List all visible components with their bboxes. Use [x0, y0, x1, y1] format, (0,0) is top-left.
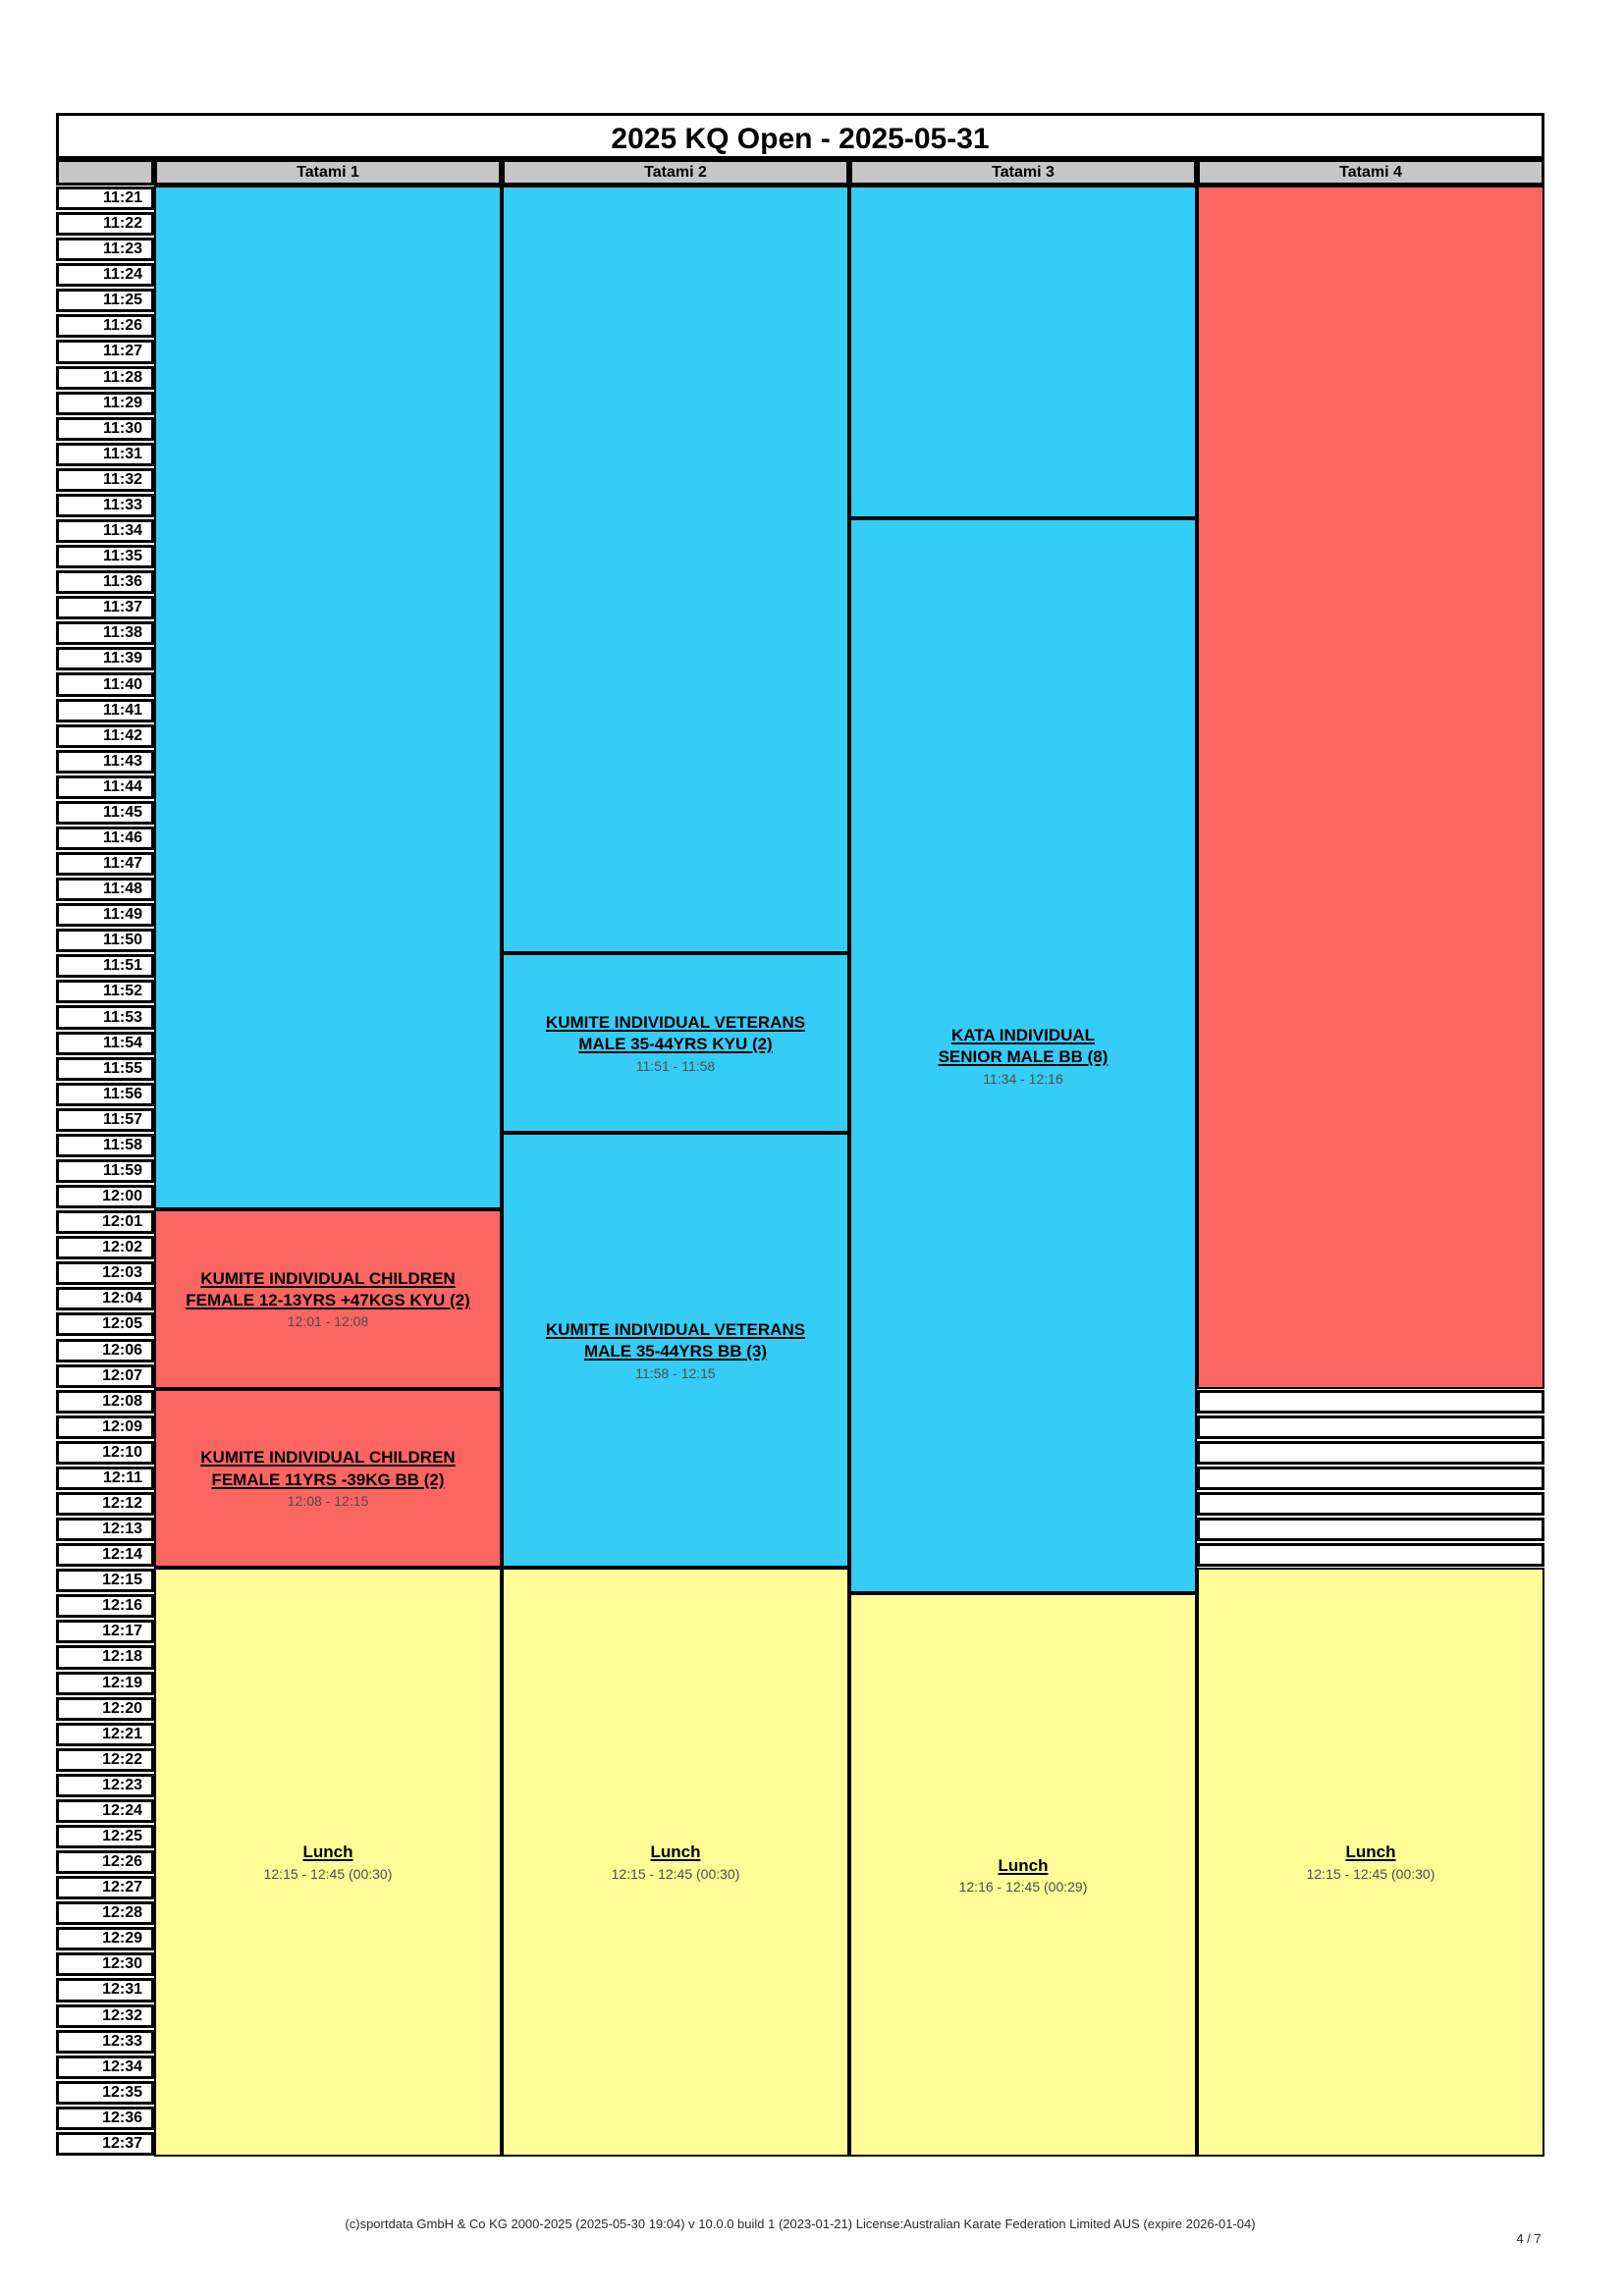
free-slot	[1197, 1518, 1544, 1541]
time-cell: 11:30	[56, 417, 154, 441]
event-content: Lunch12:16 - 12:45 (00:29)	[851, 1855, 1195, 1896]
footer-license-text: (c)sportdata GmbH & Co KG 2000-2025 (202…	[56, 2216, 1544, 2231]
time-cell: 11:59	[56, 1159, 154, 1183]
time-cell: 12:34	[56, 2056, 154, 2079]
event-title-line: Lunch	[999, 1855, 1049, 1877]
time-cell: 12:09	[56, 1415, 154, 1439]
time-cell: 11:33	[56, 494, 154, 517]
tatami-header: Tatami 4	[1197, 159, 1544, 186]
time-cell: 12:11	[56, 1467, 154, 1490]
free-slot	[1197, 1467, 1544, 1490]
time-cell: 11:46	[56, 827, 154, 850]
page-title: 2025 KQ Open - 2025-05-31	[56, 113, 1544, 159]
event-block: KATA INDIVIDUALSENIOR MALE BB (8)11:34 -…	[849, 518, 1197, 1593]
time-cell: 12:28	[56, 1901, 154, 1925]
time-cell: 12:02	[56, 1236, 154, 1259]
event-time-range: 12:15 - 12:45 (00:30)	[264, 1866, 393, 1883]
time-cell: 11:40	[56, 672, 154, 696]
time-cell: 11:24	[56, 263, 154, 287]
time-cell: 12:37	[56, 2132, 154, 2156]
time-cell: 11:57	[56, 1108, 154, 1132]
event-time-range: 11:51 - 11:58	[636, 1058, 715, 1075]
schedule-table: 2025 KQ Open - 2025-05-31 Tatami 1Tatami…	[56, 113, 1544, 2157]
time-cell: 11:49	[56, 903, 154, 927]
event-content: KUMITE INDIVIDUAL CHILDRENFEMALE 11YRS -…	[156, 1447, 500, 1510]
event-title: KUMITE INDIVIDUAL VETERANSMALE 35-44YRS …	[546, 1012, 805, 1056]
event-title: KATA INDIVIDUALSENIOR MALE BB (8)	[939, 1025, 1109, 1069]
time-cell: 11:26	[56, 314, 154, 338]
time-cell: 11:41	[56, 699, 154, 722]
time-cell: 11:31	[56, 443, 154, 466]
time-cell: 11:35	[56, 545, 154, 568]
time-cell: 12:03	[56, 1261, 154, 1285]
event-time-range: 12:15 - 12:45 (00:30)	[1307, 1866, 1435, 1883]
time-cell: 11:51	[56, 954, 154, 978]
time-cell: 12:18	[56, 1645, 154, 1669]
event-time-range: 11:58 - 12:15	[635, 1365, 715, 1382]
event-content: KUMITE INDIVIDUAL VETERANSMALE 35-44YRS …	[504, 1012, 847, 1075]
time-cell: 12:22	[56, 1748, 154, 1772]
time-cell: 11:52	[56, 980, 154, 1003]
time-cell: 12:10	[56, 1441, 154, 1465]
time-cell: 11:45	[56, 801, 154, 825]
time-cell: 11:39	[56, 647, 154, 670]
event-title-line: SENIOR MALE BB (8)	[939, 1046, 1109, 1068]
time-cell: 12:05	[56, 1312, 154, 1336]
event-content: Lunch12:15 - 12:45 (00:30)	[504, 1842, 847, 1882]
time-cell: 11:55	[56, 1057, 154, 1081]
event-title-line: FEMALE 12-13YRS +47KGS KYU (2)	[186, 1290, 470, 1311]
time-cell: 12:23	[56, 1774, 154, 1797]
event-time-range: 12:16 - 12:45 (00:29)	[959, 1879, 1088, 1896]
time-cell: 12:13	[56, 1518, 154, 1541]
lunch-block: Lunch12:15 - 12:45 (00:30)	[502, 1568, 849, 2157]
time-cell: 11:27	[56, 340, 154, 363]
lunch-block: Lunch12:15 - 12:45 (00:30)	[154, 1568, 502, 2157]
event-title: Lunch	[651, 1842, 701, 1863]
time-cell: 12:07	[56, 1364, 154, 1388]
event-block	[502, 186, 849, 953]
time-cell: 11:58	[56, 1134, 154, 1157]
event-block	[154, 186, 502, 1209]
event-title-line: Lunch	[651, 1842, 701, 1863]
time-cell: 12:30	[56, 1952, 154, 1976]
event-content: Lunch12:15 - 12:45 (00:30)	[1199, 1842, 1543, 1882]
time-cell: 11:32	[56, 468, 154, 492]
time-cell: 11:47	[56, 852, 154, 876]
time-cell: 12:12	[56, 1492, 154, 1516]
time-cell: 11:25	[56, 289, 154, 312]
event-content: KATA INDIVIDUALSENIOR MALE BB (8)11:34 -…	[851, 1025, 1195, 1088]
time-cell: 11:37	[56, 596, 154, 619]
event-title-line: FEMALE 11YRS -39KG BB (2)	[200, 1469, 455, 1491]
event-block: KUMITE INDIVIDUAL VETERANSMALE 35-44YRS …	[502, 953, 849, 1133]
time-cell: 11:28	[56, 366, 154, 390]
time-cell: 12:32	[56, 2004, 154, 2028]
time-cell: 11:53	[56, 1005, 154, 1029]
time-cell: 12:24	[56, 1799, 154, 1823]
time-cell: 11:50	[56, 929, 154, 952]
event-title: Lunch	[303, 1842, 353, 1863]
event-title: KUMITE INDIVIDUAL CHILDRENFEMALE 12-13YR…	[186, 1268, 470, 1312]
time-cell: 11:42	[56, 724, 154, 748]
tatami-header: Tatami 3	[849, 159, 1197, 186]
time-cell: 12:33	[56, 2030, 154, 2054]
event-title: KUMITE INDIVIDUAL CHILDRENFEMALE 11YRS -…	[200, 1447, 455, 1491]
time-cell: 12:25	[56, 1825, 154, 1848]
time-cell: 11:23	[56, 238, 154, 261]
event-block	[849, 186, 1197, 518]
time-cell: 11:36	[56, 570, 154, 594]
event-title-line: KUMITE INDIVIDUAL CHILDREN	[186, 1268, 470, 1290]
time-cell: 11:44	[56, 775, 154, 799]
tatami-header: Tatami 2	[502, 159, 849, 186]
event-content: Lunch12:15 - 12:45 (00:30)	[156, 1842, 500, 1882]
event-time-range: 12:08 - 12:15	[288, 1493, 369, 1510]
lunch-block: Lunch12:15 - 12:45 (00:30)	[1197, 1568, 1544, 2157]
time-cell: 12:26	[56, 1850, 154, 1874]
time-cell: 12:36	[56, 2107, 154, 2130]
time-cell: 12:00	[56, 1185, 154, 1208]
time-cell: 11:21	[56, 187, 154, 210]
event-time-range: 12:15 - 12:45 (00:30)	[612, 1866, 740, 1883]
time-cell: 11:43	[56, 750, 154, 774]
time-cell: 12:21	[56, 1723, 154, 1746]
time-cell: 11:34	[56, 519, 154, 543]
schedule-body: 11:2111:2211:2311:2411:2511:2611:2711:28…	[56, 186, 1544, 2157]
time-cell: 12:17	[56, 1620, 154, 1643]
time-cell: 12:19	[56, 1672, 154, 1695]
time-cell: 12:27	[56, 1876, 154, 1899]
event-block	[1197, 186, 1544, 1389]
event-title-line: KUMITE INDIVIDUAL CHILDREN	[200, 1447, 455, 1468]
time-cell: 12:15	[56, 1569, 154, 1592]
time-cell: 11:29	[56, 392, 154, 415]
time-cell: 12:08	[56, 1390, 154, 1414]
time-cell: 11:54	[56, 1032, 154, 1055]
event-block: KUMITE INDIVIDUAL VETERANSMALE 35-44YRS …	[502, 1133, 849, 1568]
time-cell: 12:04	[56, 1287, 154, 1310]
time-cell: 11:38	[56, 621, 154, 645]
free-slot	[1197, 1492, 1544, 1516]
time-cell: 11:56	[56, 1083, 154, 1106]
tatami-header: Tatami 1	[154, 159, 502, 186]
event-title-line: KUMITE INDIVIDUAL VETERANS	[546, 1319, 805, 1341]
time-cell: 12:31	[56, 1978, 154, 2002]
free-slot	[1197, 1441, 1544, 1465]
event-title-line: MALE 35-44YRS BB (3)	[546, 1341, 805, 1362]
time-cell: 12:16	[56, 1594, 154, 1618]
time-cell: 12:01	[56, 1210, 154, 1234]
event-content: KUMITE INDIVIDUAL VETERANSMALE 35-44YRS …	[504, 1319, 847, 1382]
event-content: KUMITE INDIVIDUAL CHILDRENFEMALE 12-13YR…	[156, 1268, 500, 1331]
event-title: Lunch	[1346, 1842, 1396, 1863]
event-title: Lunch	[999, 1855, 1049, 1877]
event-title: KUMITE INDIVIDUAL VETERANSMALE 35-44YRS …	[546, 1319, 805, 1363]
time-cell: 12:20	[56, 1697, 154, 1721]
event-title-line: Lunch	[303, 1842, 353, 1863]
free-slot	[1197, 1390, 1544, 1414]
page-number: 4 / 7	[1489, 2231, 1568, 2246]
time-cell: 12:35	[56, 2081, 154, 2105]
time-cell: 11:22	[56, 212, 154, 236]
event-title-line: MALE 35-44YRS KYU (2)	[546, 1034, 805, 1055]
schedule-page: { "page": { "title": "2025 KQ Open - 202…	[0, 0, 1624, 2296]
time-cell: 11:48	[56, 878, 154, 901]
free-slot	[1197, 1415, 1544, 1439]
event-title-line: Lunch	[1346, 1842, 1396, 1863]
event-title-line: KATA INDIVIDUAL	[939, 1025, 1109, 1046]
time-cell: 12:06	[56, 1339, 154, 1362]
event-block: KUMITE INDIVIDUAL CHILDRENFEMALE 12-13YR…	[154, 1209, 502, 1389]
time-cell: 12:29	[56, 1927, 154, 1950]
event-title-line: KUMITE INDIVIDUAL VETERANS	[546, 1012, 805, 1034]
time-cell: 12:14	[56, 1543, 154, 1567]
time-column-header	[56, 159, 154, 186]
event-time-range: 11:34 - 12:16	[983, 1071, 1062, 1088]
lunch-block: Lunch12:16 - 12:45 (00:29)	[849, 1593, 1197, 2157]
event-time-range: 12:01 - 12:08	[288, 1313, 369, 1330]
event-block: KUMITE INDIVIDUAL CHILDRENFEMALE 11YRS -…	[154, 1389, 502, 1569]
free-slot	[1197, 1543, 1544, 1567]
